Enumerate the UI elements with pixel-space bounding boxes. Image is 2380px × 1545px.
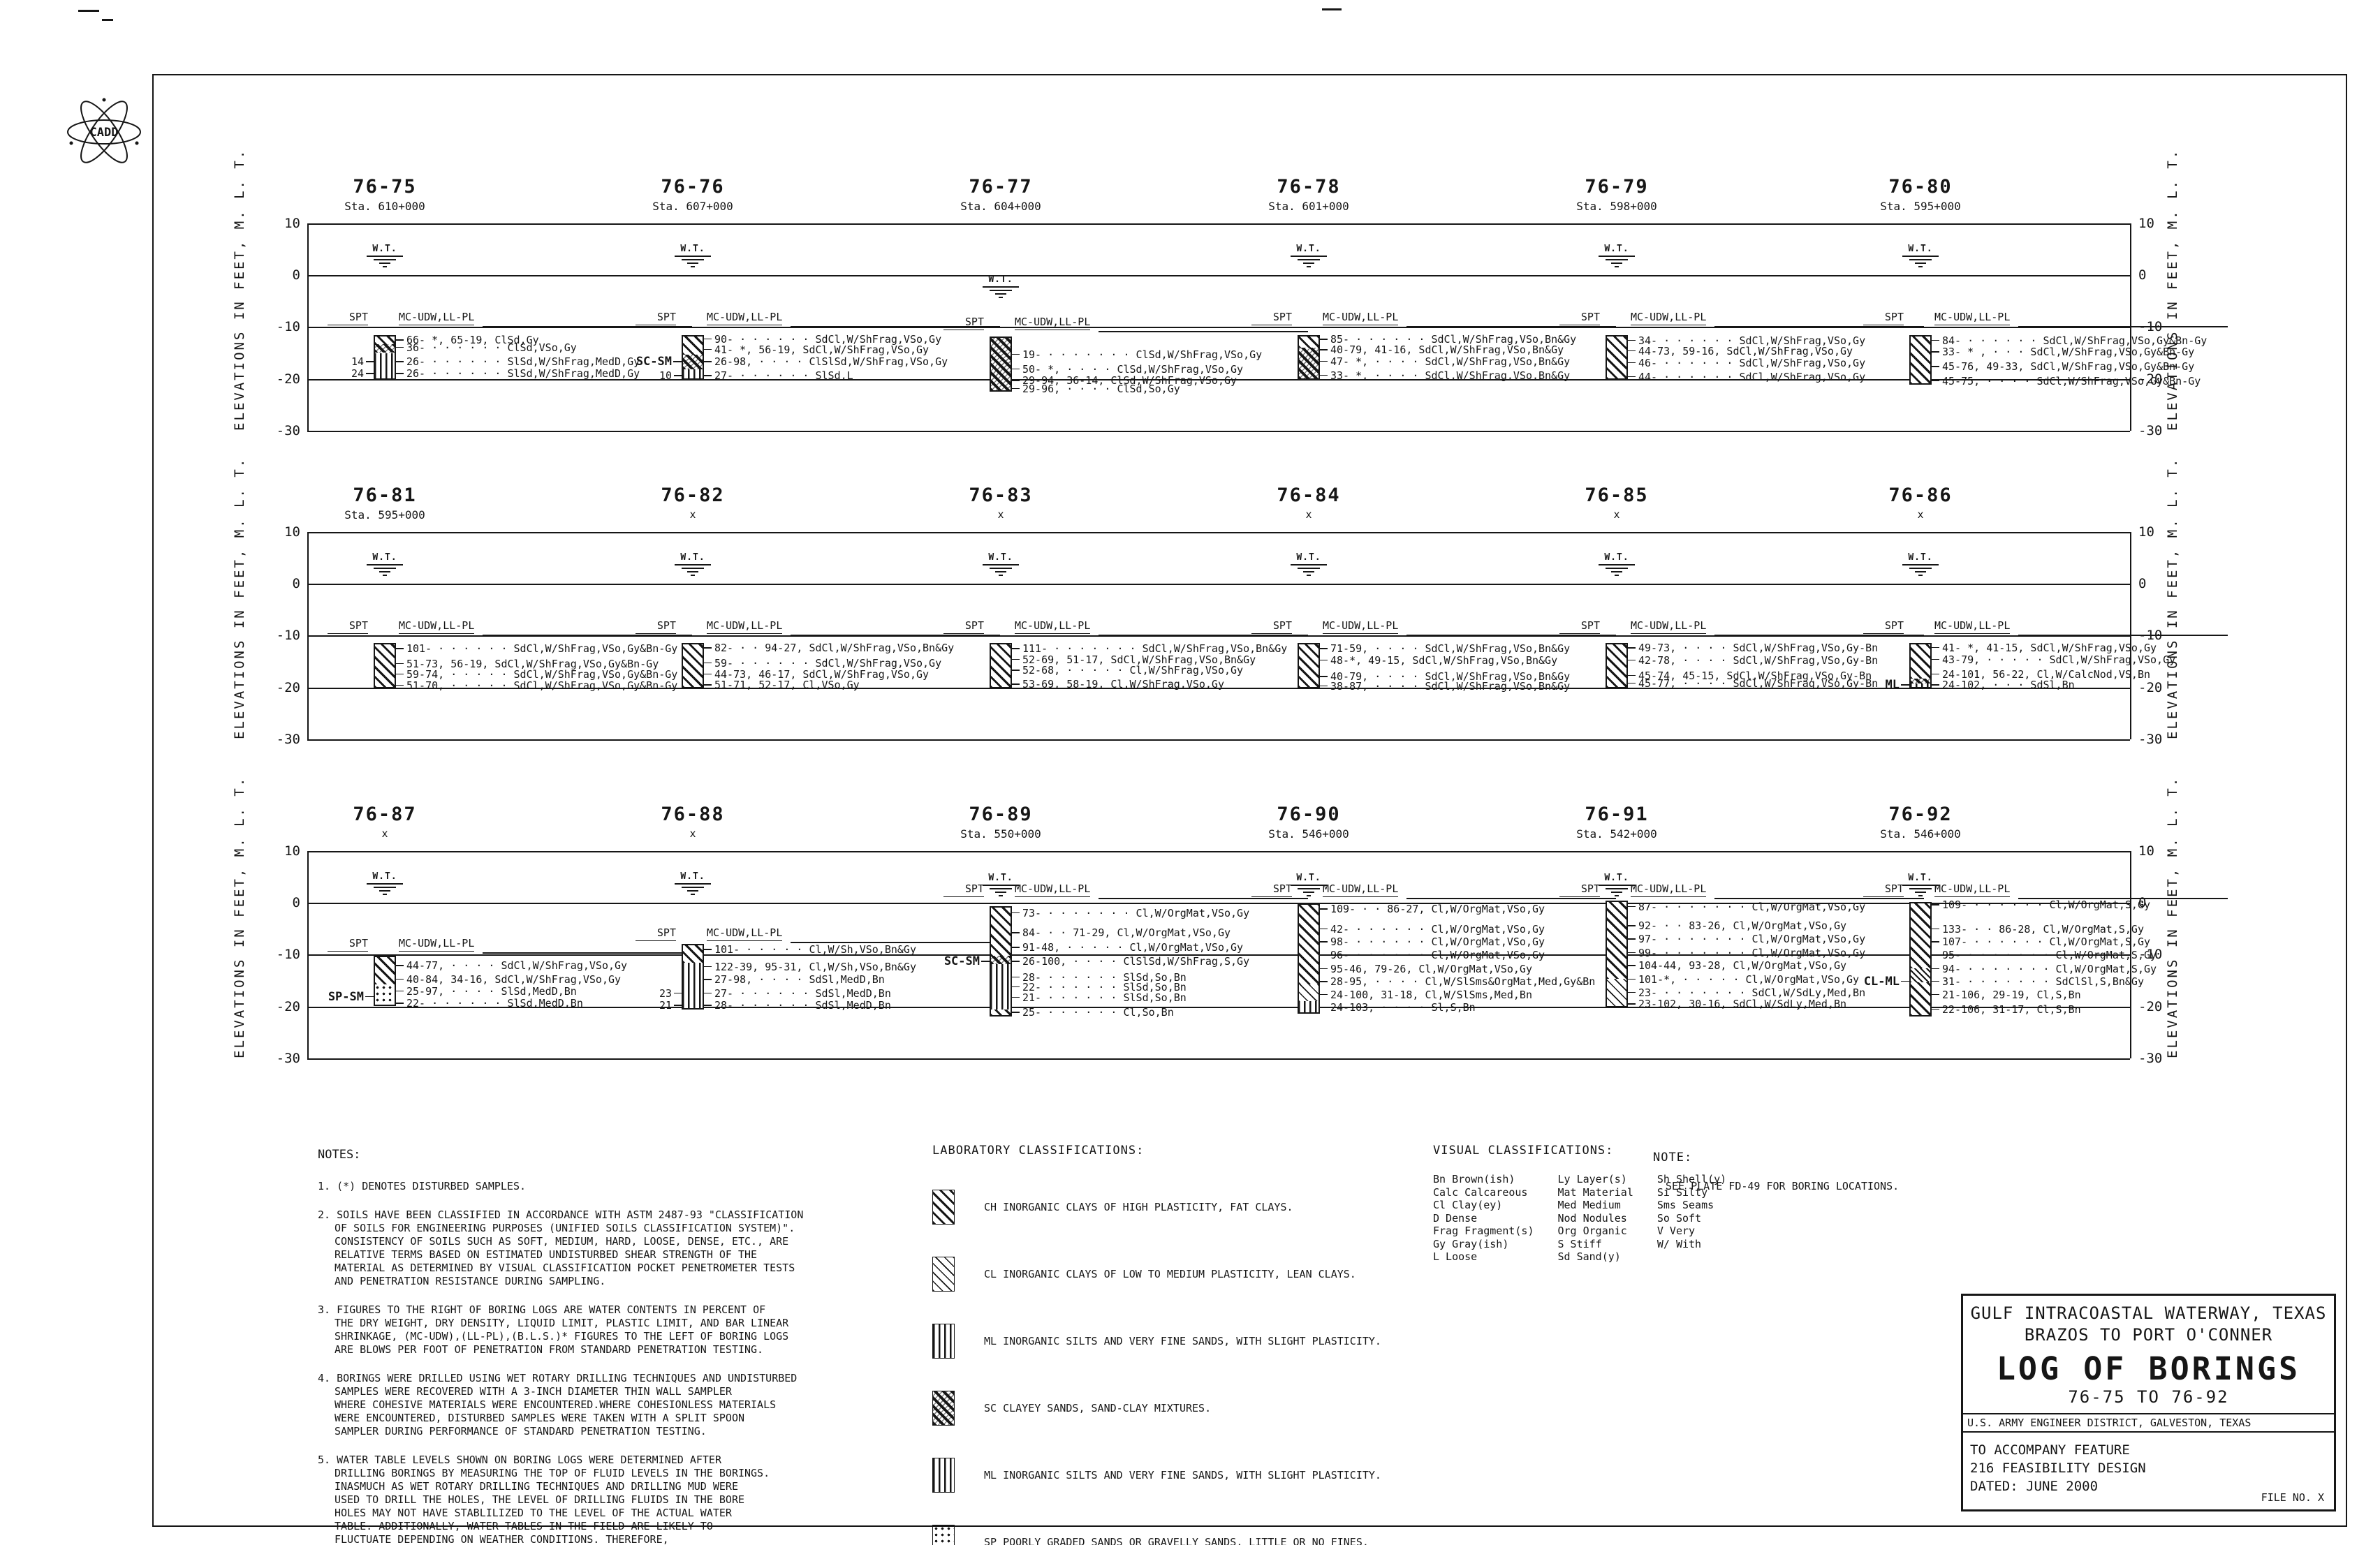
boring-station: Sta. 595+000 xyxy=(308,508,462,522)
entry-tick xyxy=(1932,941,1939,942)
soil-entry-text: 44- · · · · · · SdCl,W/ShFrag,VSo,Gy xyxy=(1638,371,1865,383)
file-number: FILE NO. X xyxy=(2261,1491,2324,1504)
entry-tick xyxy=(1628,938,1636,940)
entry-tick xyxy=(1932,340,1939,341)
cadd-logo-text: CADD xyxy=(90,126,119,140)
header-rule xyxy=(483,635,692,636)
panel-left-edge xyxy=(307,223,309,431)
header-rule xyxy=(1406,635,1616,636)
water-table-line xyxy=(383,575,387,576)
boring-station: Sta. 542+000 xyxy=(1540,827,1694,841)
boring-column xyxy=(990,643,1012,688)
water-table-symbol: W.T. xyxy=(980,274,1022,298)
header-rule xyxy=(2018,635,2228,636)
soil-entry-text: 97- · · · · · · · Cl,W/OrgMat,VSo,Gy xyxy=(1638,933,1865,945)
boring-id: 76-91 xyxy=(1540,804,1694,825)
water-table-line xyxy=(682,259,704,260)
entry-tick xyxy=(1932,929,1939,930)
mc-udw-ll-pl-header: MC-UDW,LL-PL xyxy=(1323,882,1398,897)
soil-entry-text: 45-75, · · · · SdCl,W/ShFrag,VSo,Gy&Bn-G… xyxy=(1942,375,2201,387)
soil-entry-text: 98- · · · · · · Cl,W/OrgMat,VSo,Gy xyxy=(1330,936,1545,948)
water-table-line xyxy=(990,568,1012,569)
header-rule xyxy=(1099,635,1308,636)
elevation-axis-title-left: ELEVATIONS IN FEET, M. L. T. xyxy=(232,532,247,739)
entry-tick xyxy=(1628,675,1636,677)
soil-entry-text: 104-44, 93-28, Cl,W/OrgMat,VSo,Gy xyxy=(1638,959,1846,972)
entry-tick xyxy=(1932,674,1939,675)
spt-tick xyxy=(674,1005,682,1006)
water-table-line xyxy=(691,266,695,267)
entry-tick xyxy=(1628,906,1636,908)
soil-entry-text: 59-74, · · · · · SdCl,W/ShFrag,VSo,Gy&Bn… xyxy=(406,668,677,681)
entry-tick xyxy=(1012,659,1020,660)
elevation-label-left: -20 xyxy=(264,371,300,387)
spt-column-header: SPT xyxy=(636,619,676,634)
boring-column xyxy=(682,944,704,1010)
water-table-line xyxy=(1298,888,1320,889)
water-table-line xyxy=(1298,259,1320,260)
lab-legend-list: CH INORGANIC CLAYS OF HIGH PLASTICITY, F… xyxy=(932,1190,1421,1545)
lab-legend-item: SP POORLY GRADED SANDS OR GRAVELLY SANDS… xyxy=(932,1525,1421,1545)
uscs-label-leader xyxy=(673,361,682,362)
elevation-axis-title-left: ELEVATIONS IN FEET, M. L. T. xyxy=(232,223,247,431)
uscs-group-label: ML xyxy=(1774,678,1900,692)
entry-tick xyxy=(704,663,712,664)
water-table-line xyxy=(990,290,1012,291)
boring-id: 76-86 xyxy=(1844,485,1997,506)
entry-tick xyxy=(396,361,404,362)
entry-tick xyxy=(704,361,712,362)
entry-tick xyxy=(396,674,404,675)
soil-entry-text: 46- · · · · · · SdCl,W/ShFrag,VSo,Gy xyxy=(1638,357,1865,369)
water-table-symbol: W.T. xyxy=(980,552,1022,576)
boring-station: Sta. 601+000 xyxy=(1232,200,1386,213)
soil-entry-text: 99- · · · · · · · Cl,W/OrgMat,VSo,Gy xyxy=(1638,947,1865,959)
water-table-symbol: W.T. xyxy=(364,244,406,267)
water-table-symbol: W.T. xyxy=(1596,552,1638,576)
water-table-line xyxy=(990,888,1012,889)
entry-tick xyxy=(1320,981,1328,982)
soil-entry-text: 40-84, 34-16, SdCl,W/ShFrag,VSo,Gy xyxy=(406,973,621,986)
spt-column-header: SPT xyxy=(1251,311,1292,325)
soil-entry-text: 42-78, · · · · SdCl,W/ShFrag,VSo,Gy-Bn xyxy=(1638,654,1878,667)
spt-column-header: SPT xyxy=(1559,311,1600,325)
soil-entry-text: 22- · · · · · · SlSd,MedD,Bn xyxy=(406,997,583,1010)
uscs-group-label: SC-SM xyxy=(854,954,980,968)
water-table-line xyxy=(1915,263,1926,264)
water-table-line xyxy=(983,564,1019,565)
water-table-line xyxy=(1918,575,1923,576)
water-table-line xyxy=(999,297,1003,298)
water-table-line xyxy=(1902,256,1939,257)
water-table-line xyxy=(1307,895,1311,896)
spt-column-header: SPT xyxy=(943,316,984,330)
entry-tick xyxy=(1932,994,1939,996)
soil-entry-text: 21- · · · · · · SlSd,So,Bn xyxy=(1022,991,1187,1004)
boring-station: Sta. 610+000 xyxy=(308,200,462,213)
elevation-label-left: 10 xyxy=(264,216,300,231)
water-table-line xyxy=(682,568,704,569)
boring-column xyxy=(682,643,704,688)
entry-tick xyxy=(1012,683,1020,685)
water-table-line xyxy=(1902,564,1939,565)
entry-tick xyxy=(1012,997,1020,998)
soil-entry-text: 73- · · · · · · · Cl,W/OrgMat,VSo,Gy xyxy=(1022,907,1249,919)
soil-entry-text: 25- · · · · · · Cl,So,Bn xyxy=(1022,1006,1174,1019)
feature-text: TO ACCOMPANY FEATURE 216 FEASIBILITY DES… xyxy=(1963,1433,2334,1495)
entry-tick xyxy=(1628,1003,1636,1005)
water-table-symbol: W.T. xyxy=(364,871,406,895)
water-table-line xyxy=(675,883,711,885)
water-table-line xyxy=(1611,263,1622,264)
water-table-line xyxy=(999,575,1003,576)
soil-entry-text: 101- · · · · · · SdCl,W/ShFrag,VSo,Gy&Bn… xyxy=(406,642,677,655)
water-table-label: W.T. xyxy=(1900,873,1941,883)
spt-column-header: SPT xyxy=(328,619,368,634)
mc-udw-ll-pl-header: MC-UDW,LL-PL xyxy=(707,926,782,941)
uscs-label-leader xyxy=(1901,981,1909,982)
boring-station-x: x xyxy=(616,827,770,840)
entry-tick xyxy=(1628,683,1636,684)
boring-id: 76-76 xyxy=(616,176,770,198)
entry-tick xyxy=(1932,684,1939,686)
spt-tick xyxy=(366,373,374,374)
uscs-group-label: SP-SM xyxy=(238,990,364,1004)
mc-udw-ll-pl-header: MC-UDW,LL-PL xyxy=(399,619,474,634)
elevation-gridline xyxy=(307,584,2130,585)
soil-entry-text: 28- · · · · · · SdSl,MedD,Bn xyxy=(714,999,891,1012)
soil-entry-text: 133- · · 86-28, Cl,W/OrgMat,S,Gy xyxy=(1942,923,2144,936)
entry-tick xyxy=(1320,361,1328,362)
elevation-label-left: -10 xyxy=(264,628,300,643)
panel-left-edge xyxy=(307,532,309,739)
sc-pattern-swatch xyxy=(932,1391,955,1426)
spt-blowcount-value: 10 xyxy=(637,369,672,382)
boring-station-x: x xyxy=(1540,508,1694,521)
spt-blowcount-value: 21 xyxy=(637,999,672,1012)
cl-pattern-swatch xyxy=(932,1257,955,1292)
water-table-label: W.T. xyxy=(980,274,1022,285)
uscs-group-label: SC-SM xyxy=(546,355,672,369)
water-table-line xyxy=(687,571,698,572)
header-rule xyxy=(1099,331,1308,332)
entry-tick xyxy=(396,1003,404,1004)
spt-column-header: SPT xyxy=(328,937,368,952)
scan-mark xyxy=(1322,8,1342,10)
elevation-label-left: 0 xyxy=(264,895,300,910)
water-table-line xyxy=(379,571,390,572)
entry-tick xyxy=(704,375,712,376)
lab-legend-text: SP POORLY GRADED SANDS OR GRAVELLY SANDS… xyxy=(984,1536,1369,1545)
mc-udw-ll-pl-header: MC-UDW,LL-PL xyxy=(1323,619,1398,634)
boring-id: 76-77 xyxy=(924,176,1078,198)
entry-tick xyxy=(396,979,404,980)
soil-entry-text: 26-98, · · · · ClSlSd,W/ShFrag,VSo,Gy xyxy=(714,355,948,368)
soil-entry-text: 41- *, 56-19, SdCl,W/ShFrag,VSo,Gy xyxy=(714,343,929,356)
uscs-group-label: CL-ML xyxy=(1774,975,1900,989)
boring-station: Sta. 604+000 xyxy=(924,200,1078,213)
spt-column-header: SPT xyxy=(1559,882,1600,897)
entry-tick xyxy=(1932,904,1939,905)
boring-column xyxy=(1606,643,1628,688)
soil-entry-text: 19- · · · · · · · ClSd,W/ShFrag,VSo,Gy xyxy=(1022,348,1262,361)
entry-tick xyxy=(1320,954,1328,956)
soil-entry-text: 51-71, 52-17, Cl,VSo,Gy xyxy=(714,679,860,691)
water-table-line xyxy=(983,286,1019,288)
elevation-label-right: 10 xyxy=(2138,843,2154,859)
soil-entry-text: 40-79, 41-16, SdCl,W/ShFrag,VSo,Bn&Gy xyxy=(1330,343,1564,356)
entry-tick xyxy=(1320,1007,1328,1008)
water-table-label: W.T. xyxy=(672,871,714,882)
water-table-label: W.T. xyxy=(1900,244,1941,254)
entry-tick xyxy=(1012,388,1020,390)
boring-column xyxy=(374,335,396,380)
soil-entry-text: 27- · · · · · · SdSl,MedD,Bn xyxy=(714,987,891,1000)
boring-id: 76-78 xyxy=(1232,176,1386,198)
spt-tick xyxy=(366,361,374,362)
boring-id: 76-87 xyxy=(308,804,462,825)
entry-tick xyxy=(1932,351,1939,353)
entry-tick xyxy=(704,1005,712,1006)
water-table-label: W.T. xyxy=(1596,552,1638,563)
entry-tick xyxy=(1628,952,1636,954)
boring-column xyxy=(1298,903,1320,1014)
water-table-line xyxy=(1606,259,1628,260)
water-table-line xyxy=(1599,256,1635,257)
ch-pattern-swatch xyxy=(932,1190,955,1225)
water-table-line xyxy=(1918,266,1923,267)
entry-tick xyxy=(1320,968,1328,970)
soil-entry-text: 26-100, · · · · ClSlSd,W/ShFrag,S,Gy xyxy=(1022,955,1249,968)
laboratory-classifications: LABORATORY CLASSIFICATIONS: CH INORGANIC… xyxy=(932,1144,1421,1545)
water-table-line xyxy=(367,883,403,885)
project-title-line2: BRAZOS TO PORT O'CONNER xyxy=(1963,1324,2334,1346)
scan-mark xyxy=(102,19,113,21)
spt-column-header: SPT xyxy=(1863,311,1904,325)
water-table-label: W.T. xyxy=(1288,552,1330,563)
soil-entry-text: 44-73, 59-16, SdCl,W/ShFrag,VSo,Gy xyxy=(1638,345,1853,357)
spt-blowcount-value: 14 xyxy=(329,355,364,368)
uscs-label-leader xyxy=(365,996,374,998)
elevation-label-left: -10 xyxy=(264,319,300,334)
mc-udw-ll-pl-header: MC-UDW,LL-PL xyxy=(1631,619,1706,634)
boring-column xyxy=(1909,643,1932,688)
entry-tick xyxy=(1320,349,1328,350)
mc-udw-ll-pl-header: MC-UDW,LL-PL xyxy=(399,937,474,952)
water-table-label: W.T. xyxy=(672,552,714,563)
boring-column xyxy=(374,956,396,1006)
soil-entry-text: 25-97, · · · · SlSd,MedD,Bn xyxy=(406,985,577,998)
boring-station-x: x xyxy=(308,827,462,840)
water-table-line xyxy=(682,887,704,888)
entry-tick xyxy=(704,349,712,350)
elevation-label-left: -20 xyxy=(264,680,300,695)
header-rule xyxy=(791,635,1000,636)
boring-id: 76-79 xyxy=(1540,176,1694,198)
boring-station: Sta. 598+000 xyxy=(1540,200,1694,213)
water-table-line xyxy=(1606,888,1628,889)
soil-entry-text: 22-106, 31-17, Cl,S,Bn xyxy=(1942,1003,2081,1016)
boring-station: Sta. 595+000 xyxy=(1844,200,1997,213)
entry-tick xyxy=(1012,1012,1020,1013)
mc-udw-ll-pl-header: MC-UDW,LL-PL xyxy=(1015,619,1090,634)
water-table-line xyxy=(383,894,387,895)
entry-tick xyxy=(1932,380,1939,382)
entry-tick xyxy=(1012,369,1020,370)
boring-id: 76-84 xyxy=(1232,485,1386,506)
soil-entry-text: 33- * , · · · SdCl,W/ShFrag,VSo,Gy&Bn-Gy xyxy=(1942,346,2194,358)
spt-column-header: SPT xyxy=(328,311,368,325)
water-table-line xyxy=(1291,564,1327,565)
entry-tick xyxy=(1012,354,1020,355)
mc-udw-ll-pl-header: MC-UDW,LL-PL xyxy=(1631,882,1706,897)
header-rule xyxy=(1714,898,1924,899)
water-table-label: W.T. xyxy=(364,871,406,882)
agency-name: U.S. ARMY ENGINEER DISTRICT, GALVESTON, … xyxy=(1963,1413,2334,1433)
soil-entry-text: 96- · · · · · · Cl,W/OrgMat,VSo,Gy xyxy=(1330,949,1545,961)
water-table-symbol: W.T. xyxy=(364,552,406,576)
spt-column-header: SPT xyxy=(636,926,676,941)
lab-legend-text: ML INORGANIC SILTS AND VERY FINE SANDS, … xyxy=(984,1335,1381,1347)
entry-tick xyxy=(1628,376,1636,378)
water-table-line xyxy=(995,892,1006,893)
boring-column xyxy=(1909,335,1932,385)
elevation-axis-title-left: ELEVATIONS IN FEET, M. L. T. xyxy=(232,851,247,1058)
boring-id: 76-89 xyxy=(924,804,1078,825)
entry-tick xyxy=(1932,647,1939,649)
soil-entry-text: 87- · · · · · · · Cl,W/OrgMat,VSo,Gy xyxy=(1638,901,1865,913)
entry-tick xyxy=(1628,965,1636,966)
entry-tick xyxy=(1320,908,1328,910)
entry-tick xyxy=(1628,647,1636,649)
entry-tick xyxy=(704,674,712,675)
spt-column-header: SPT xyxy=(636,311,676,325)
boring-station: Sta. 546+000 xyxy=(1232,827,1386,841)
water-table-line xyxy=(1615,895,1619,896)
entry-tick xyxy=(396,373,404,374)
soil-entry-text: 84- · · 71-29, Cl,W/OrgMat,VSo,Gy xyxy=(1022,926,1231,939)
entry-tick xyxy=(1932,981,1939,982)
spt-column-header: SPT xyxy=(1559,619,1600,634)
boring-column xyxy=(682,335,704,380)
mc-udw-ll-pl-header: MC-UDW,LL-PL xyxy=(1015,316,1090,330)
entry-tick xyxy=(396,648,404,649)
water-table-line xyxy=(1915,892,1926,893)
entry-tick xyxy=(1012,986,1020,988)
note-item: 2. SOILS HAVE BEEN CLASSIFIED IN ACCORDA… xyxy=(318,1208,890,1288)
elevation-gridline xyxy=(307,1058,2130,1060)
soil-entry-text: 29-96, · · · · ClSd,So,Gy xyxy=(1022,383,1180,395)
entry-tick xyxy=(1320,929,1328,930)
lab-legend-item: SC CLAYEY SANDS, SAND-CLAY MIXTURES. xyxy=(932,1391,1421,1426)
boring-id: 76-81 xyxy=(308,485,462,506)
entry-tick xyxy=(396,663,404,665)
soil-entry-text: 95-46, 79-26, Cl,W/OrgMat,VSo,Gy xyxy=(1330,963,1532,975)
spt-column-header: SPT xyxy=(1251,619,1292,634)
entry-tick xyxy=(704,647,712,649)
elevation-axis-title-right: ELEVATIONS IN FEET, M. L. T. xyxy=(2165,851,2180,1058)
water-table-label: W.T. xyxy=(364,244,406,254)
water-table-line xyxy=(1307,266,1311,267)
entry-tick xyxy=(1628,350,1636,352)
water-table-label: W.T. xyxy=(1596,244,1638,254)
elevation-label-right: 10 xyxy=(2138,524,2154,540)
spt-column-header: SPT xyxy=(1863,882,1904,897)
elevation-label-left: 10 xyxy=(264,524,300,540)
water-table-line xyxy=(1291,256,1327,257)
water-table-line xyxy=(691,894,695,895)
water-table-label: W.T. xyxy=(1596,873,1638,883)
elevation-label-right: 10 xyxy=(2138,216,2154,231)
boring-station-x: x xyxy=(1232,508,1386,521)
entry-tick xyxy=(1012,670,1020,671)
elevation-label-left: -30 xyxy=(264,423,300,438)
water-table-line xyxy=(1615,575,1619,576)
entry-tick xyxy=(1932,366,1939,367)
water-table-line xyxy=(1902,885,1939,886)
note-item: 3. FIGURES TO THE RIGHT OF BORING LOGS A… xyxy=(318,1303,890,1357)
water-table-line xyxy=(1909,259,1932,260)
entry-tick xyxy=(704,966,712,968)
soil-entry-text: 82- · · 94-27, SdCl,W/ShFrag,VSo,Bn&Gy xyxy=(714,642,954,654)
soil-entry-text: 92- · · 83-26, Cl,W/OrgMat,VSo,Gy xyxy=(1638,919,1846,932)
uscs-label-leader xyxy=(981,961,990,962)
water-table-symbol: W.T. xyxy=(1900,552,1941,576)
elevation-label-left: 10 xyxy=(264,843,300,859)
spt-tick xyxy=(674,993,682,994)
soil-entry-text: 28-95, · · · · Cl,W/SlSms&OrgMat,Med,Gy&… xyxy=(1330,975,1595,988)
entry-tick xyxy=(1932,1009,1939,1010)
entry-tick xyxy=(1628,660,1636,661)
water-table-line xyxy=(1599,885,1635,886)
entry-tick xyxy=(1320,994,1328,996)
soil-entry-text: 41- *, 41-15, SdCl,W/ShFrag,VSo,Gy xyxy=(1942,642,2157,654)
visual-abbrev-column: Bn Brown(ish) Calc Calcareous Cl Clay(ey… xyxy=(1433,1173,1534,1264)
water-table-line xyxy=(1599,564,1635,565)
water-table-label: W.T. xyxy=(1288,244,1330,254)
boring-station-x: x xyxy=(616,508,770,521)
elevation-label-left: -30 xyxy=(264,1051,300,1066)
plate-note: NOTE: SEE PLATE FD-49 FOR BORING LOCATIO… xyxy=(1653,1151,1899,1192)
soil-entry-text: 50- *, · · · · ClSd,W/ShFrag,VSo,Gy xyxy=(1022,363,1243,376)
water-table-line xyxy=(379,263,390,264)
soil-entry-text: 31- · · · · · · · SdClSl,S,Bn&Gy xyxy=(1942,975,2144,988)
soil-entry-text: 27- · · · · · · SlSd,L xyxy=(714,369,853,382)
soil-entry-text: 47- *, · · · · SdCl,W/ShFrag,VSo,Bn&Gy xyxy=(1330,355,1570,368)
lab-heading: LABORATORY CLASSIFICATIONS: xyxy=(932,1144,1421,1158)
elevation-gridline xyxy=(307,851,2130,852)
boring-id: 76-83 xyxy=(924,485,1078,506)
water-table-line xyxy=(1298,568,1320,569)
elevation-gridline xyxy=(307,275,2130,276)
mc-udw-ll-pl-header: MC-UDW,LL-PL xyxy=(1631,311,1706,325)
boring-column xyxy=(374,643,396,688)
lab-legend-item: CL INORGANIC CLAYS OF LOW TO MEDIUM PLAS… xyxy=(932,1257,1421,1292)
sheet-subtitle: 76-75 TO 76-92 xyxy=(1963,1387,2334,1407)
water-table-line xyxy=(691,575,695,576)
water-table-label: W.T. xyxy=(364,552,406,563)
mc-udw-ll-pl-header: MC-UDW,LL-PL xyxy=(1323,311,1398,325)
soil-entry-text: 33- *, · · · · SdCl,W/ShFrag,VSo,Bn&Gy xyxy=(1330,369,1570,382)
mc-udw-ll-pl-header: MC-UDW,LL-PL xyxy=(707,619,782,634)
entry-tick xyxy=(1012,947,1020,948)
soil-entry-text: 48-*, 49-15, SdCl,W/ShFrag,VSo,Bn&Gy xyxy=(1330,654,1557,667)
spt-tick xyxy=(674,375,682,376)
plate-note-text: SEE PLATE FD-49 FOR BORING LOCATIONS. xyxy=(1666,1180,1899,1192)
notes-heading: NOTES: xyxy=(318,1148,890,1162)
boring-column xyxy=(1606,901,1628,1007)
water-table-label: W.T. xyxy=(1900,552,1941,563)
